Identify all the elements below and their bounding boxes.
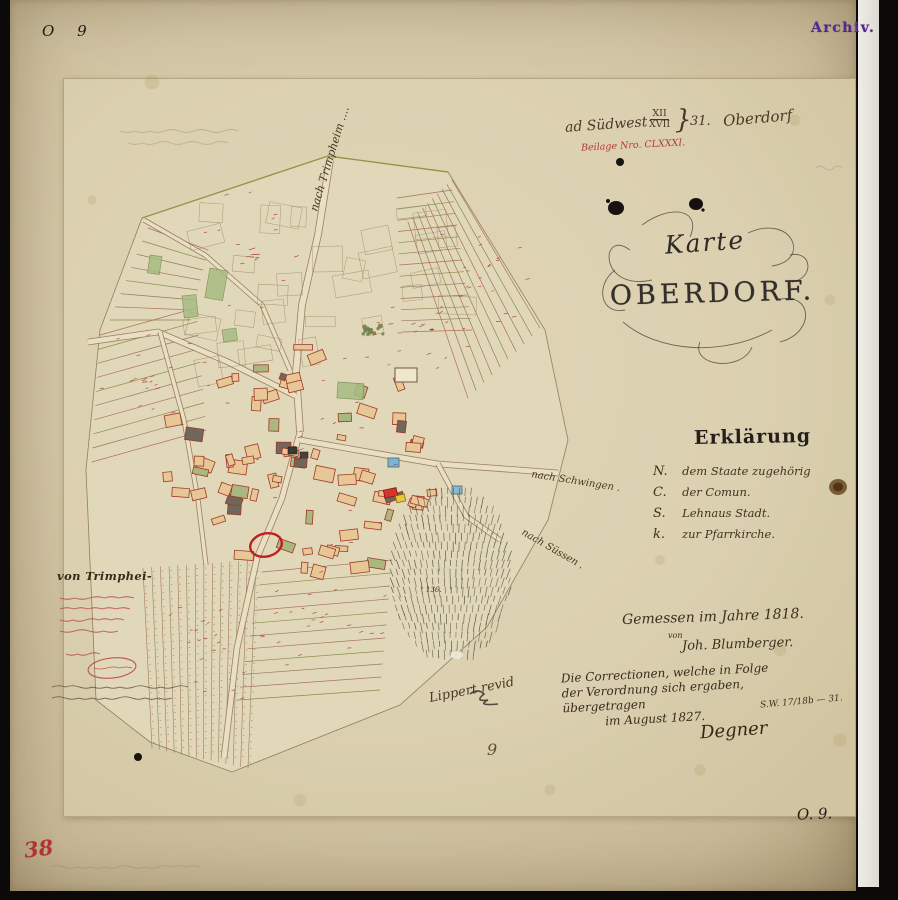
fraction-denominator: XVII	[649, 119, 670, 130]
scanned-map-page: nach Trimpheim ....nach Schwingen .nach …	[0, 0, 898, 900]
legend-symbol: C.	[653, 485, 677, 500]
cadastral-map-drawing: nach Trimpheim ....nach Schwingen .nach …	[0, 0, 898, 900]
archiv-stamp: Archiv.	[811, 20, 875, 36]
legend-label: dem Staate zugehörig	[682, 464, 811, 478]
legend-label: Lehnaus Stadt.	[682, 506, 770, 520]
parcel-number-136: 136.	[426, 586, 442, 594]
header-sheet-fraction: XII XVII	[649, 109, 670, 130]
corner-mark-bottom-right: O. 9.	[797, 804, 833, 823]
legend-label: der Comun.	[682, 485, 750, 499]
legend-heading: Erklärung	[694, 425, 811, 449]
corner-mark-top-left: O 9	[42, 22, 96, 40]
map-revision-signature: Lippert revid	[427, 675, 516, 706]
bottom-center-number: 9	[487, 740, 497, 759]
map-title-place: OBERDORF.	[600, 275, 826, 312]
legend-symbol: k.	[653, 527, 677, 542]
legend-item: k. zur Pfarrkirche.	[653, 523, 811, 544]
corner-mark-bottom-left-red: 38	[23, 834, 55, 862]
margin-note-heading: von Trimphei-	[57, 569, 152, 583]
survey-note-von: von	[668, 631, 683, 640]
legend-item: C. der Comun.	[653, 481, 811, 502]
header-number: 31.	[690, 114, 711, 129]
legend-item: N. dem Staate zugehörig	[653, 460, 811, 481]
legend-item: S. Lehnaus Stadt.	[653, 502, 811, 523]
legend-symbol: N.	[653, 464, 677, 479]
legend-symbol: S.	[653, 506, 677, 521]
legend: N. dem Staate zugehörig C. der Comun. S.…	[653, 460, 811, 544]
legend-label: zur Pfarrkirche.	[682, 527, 775, 541]
